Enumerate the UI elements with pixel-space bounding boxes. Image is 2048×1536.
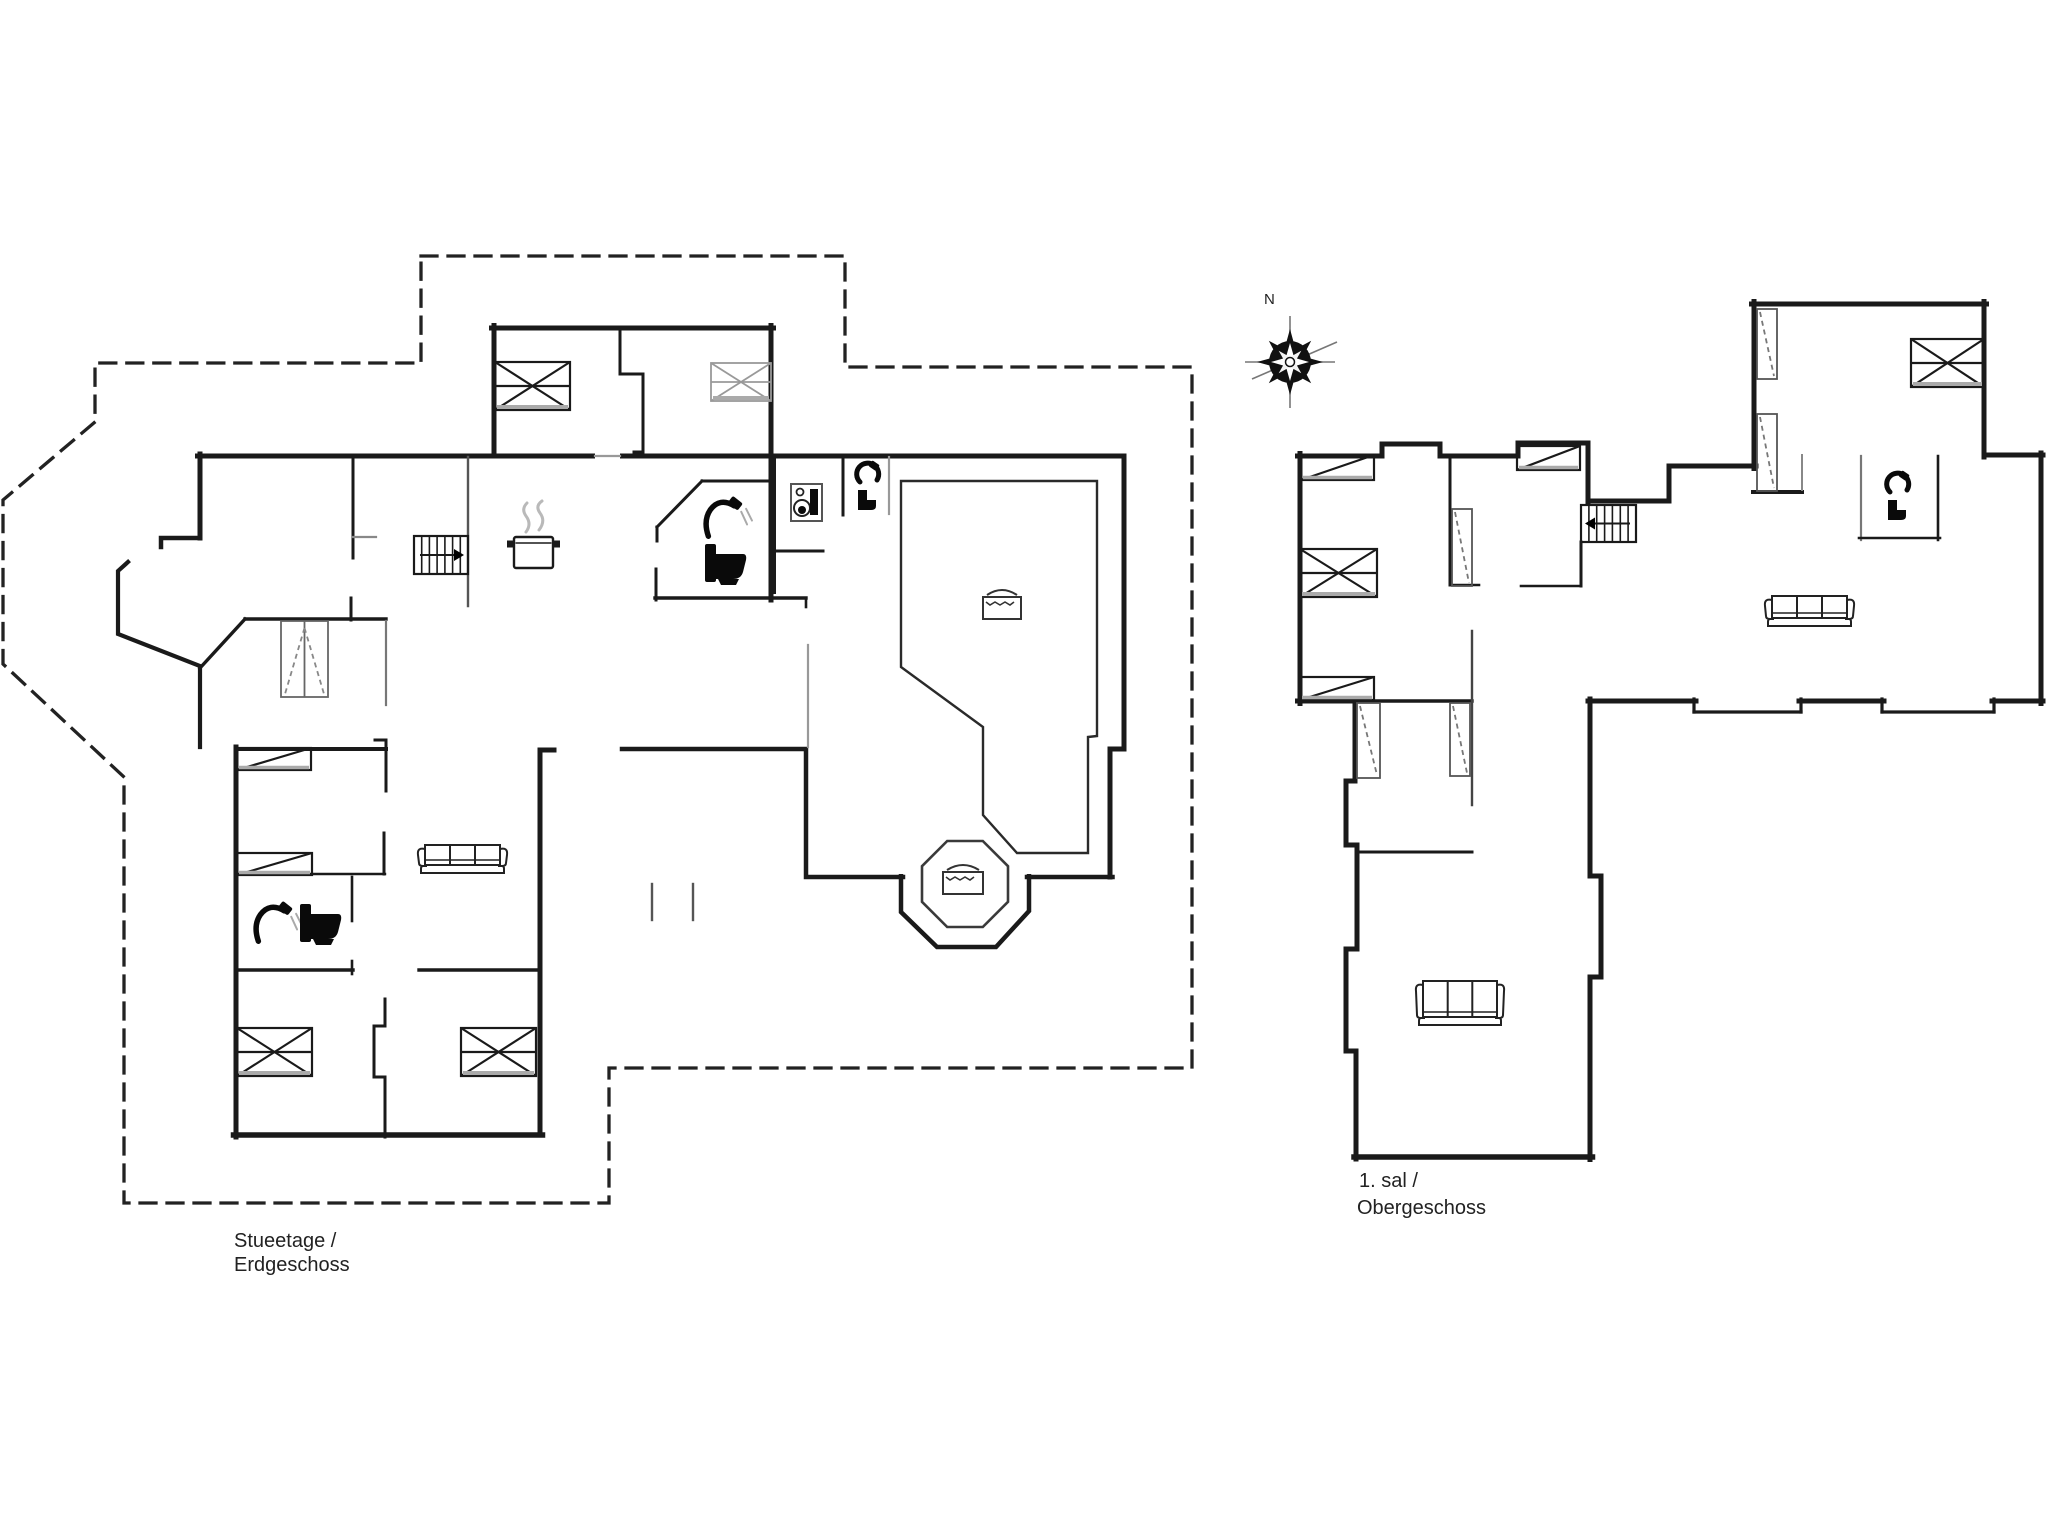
svg-text:N: N: [1264, 291, 1275, 308]
svg-text:1. sal /: 1. sal /: [1359, 1170, 1418, 1192]
svg-text:Erdgeschoss: Erdgeschoss: [234, 1254, 350, 1276]
svg-text:Stueetage /: Stueetage /: [234, 1230, 337, 1252]
svg-text:Obergeschoss: Obergeschoss: [1357, 1197, 1486, 1219]
